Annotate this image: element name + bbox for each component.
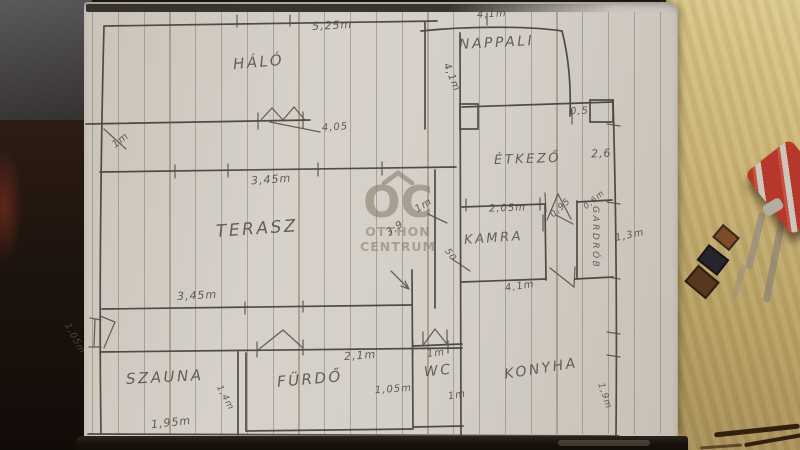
rule-line [169,12,170,434]
watermark-initials: OC [358,182,438,224]
rule-line [247,12,248,434]
otthon-centrum-watermark: OC OTTHON CENTRUM [358,170,438,255]
photo-scene: OC OTTHON CENTRUM [0,0,800,450]
rule-line [298,12,299,434]
maroon-reflection [0,148,22,263]
watermark-line1: OTTHON [358,224,438,240]
edge-smudge [558,440,650,446]
rule-line [608,12,609,434]
rule-line [144,12,145,434]
rule-line [221,12,222,434]
page-top-edge [86,4,616,12]
rule-line [582,12,583,434]
rule-line [531,12,532,434]
rule-line [556,12,557,434]
rule-line [453,12,454,434]
rule-line [479,12,480,434]
watermark-line2: CENTRUM [358,239,438,255]
rule-line [634,12,635,434]
rule-line [505,12,506,434]
rule-line [324,12,325,434]
rule-line [660,12,661,434]
rule-line [273,12,274,434]
rule-line [350,12,351,434]
rule-line [92,12,93,434]
rule-line [195,12,196,434]
rule-line [118,12,119,434]
